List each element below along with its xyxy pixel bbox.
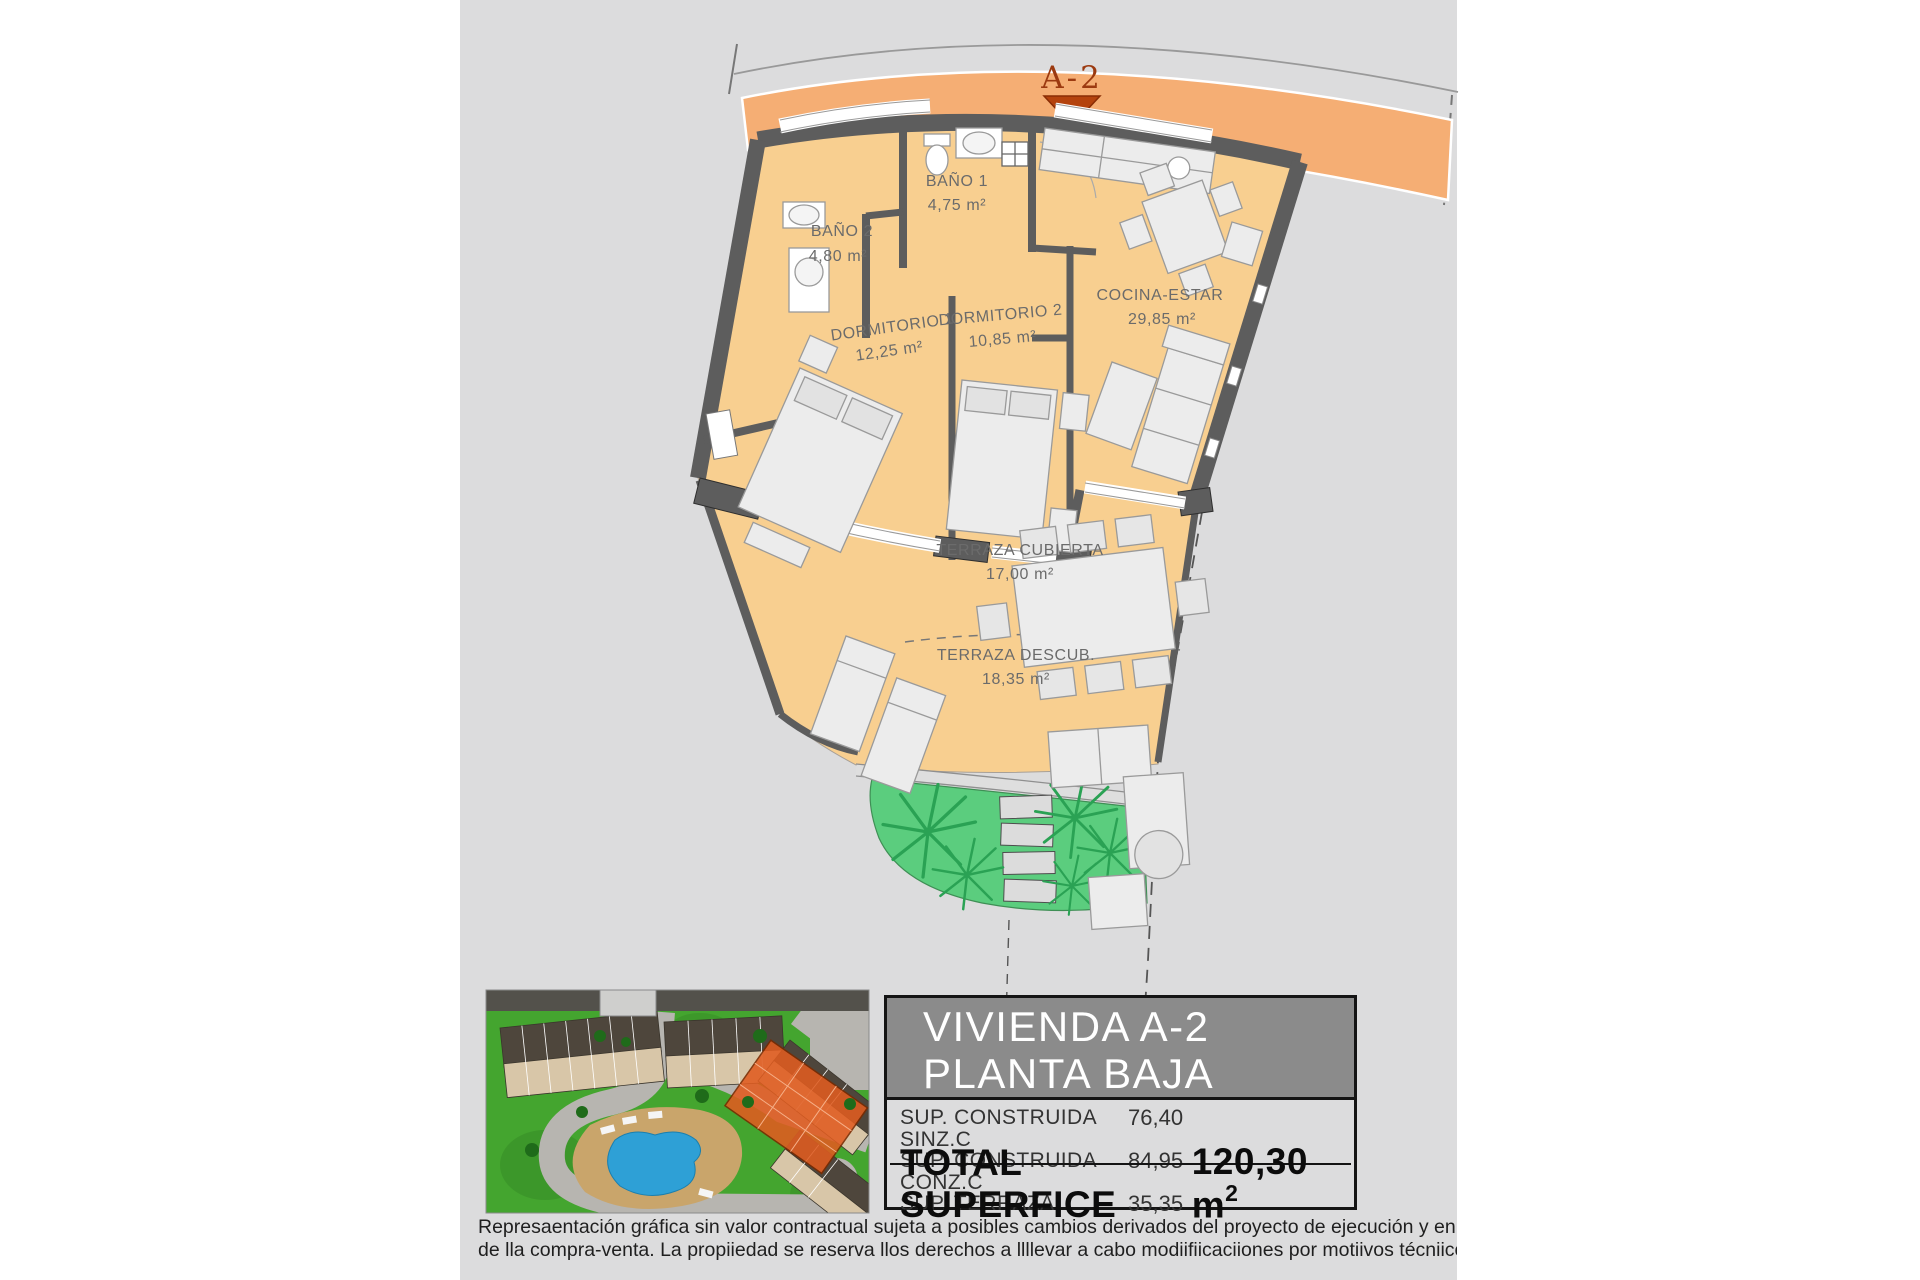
room-label-terraza-descub: TERRAZA DESCUB. <box>937 647 1095 664</box>
room-area-cocina: 29,85 m² <box>1128 311 1196 328</box>
site-pool <box>573 1107 742 1209</box>
page: A-2 <box>0 0 1920 1280</box>
disclaimer-line1: Represaentación gráfica sin valor contra… <box>478 1216 1457 1239</box>
room-area-banio1: 4,75 m² <box>928 197 987 214</box>
room-label-banio1: BAÑO 1 <box>926 170 988 190</box>
total-surface-row: TOTAL SUPERFICE 120,30 m2 <box>890 1163 1351 1204</box>
room-label-terraza-cubierta: TERRAZA CUBIERTA <box>936 542 1103 559</box>
room-label-cocina: COCINA-ESTAR <box>1097 287 1224 304</box>
total-surface-label: TOTAL SUPERFICE <box>900 1142 1192 1226</box>
unit-title-line2: PLANTA BAJA <box>923 1050 1354 1097</box>
room-area-terraza-cubierta: 17,00 m² <box>986 566 1054 583</box>
info-panel: VIVIENDA A-2 PLANTA BAJA SUP. CONSTRUIDA… <box>884 995 1357 1210</box>
site-plan-image <box>486 990 887 1236</box>
room-area-banio2: 4,80 m² <box>809 248 868 265</box>
room-label-banio2: BAÑO 2 <box>811 220 873 240</box>
info-panel-header: VIVIENDA A-2 PLANTA BAJA <box>887 998 1354 1100</box>
room-area-terraza-descub: 18,35 m² <box>982 671 1050 688</box>
disclaimer: Represaentación gráfica sin valor contra… <box>460 1216 1457 1268</box>
unit-marker-label: A-2 <box>1040 60 1103 96</box>
total-surface-value: 120,30 m2 <box>1192 1141 1337 1226</box>
unit-title-line1: VIVIENDA A-2 <box>923 1003 1354 1050</box>
disclaimer-line2: de lla compra-venta. La propiiedad se re… <box>478 1239 1457 1262</box>
